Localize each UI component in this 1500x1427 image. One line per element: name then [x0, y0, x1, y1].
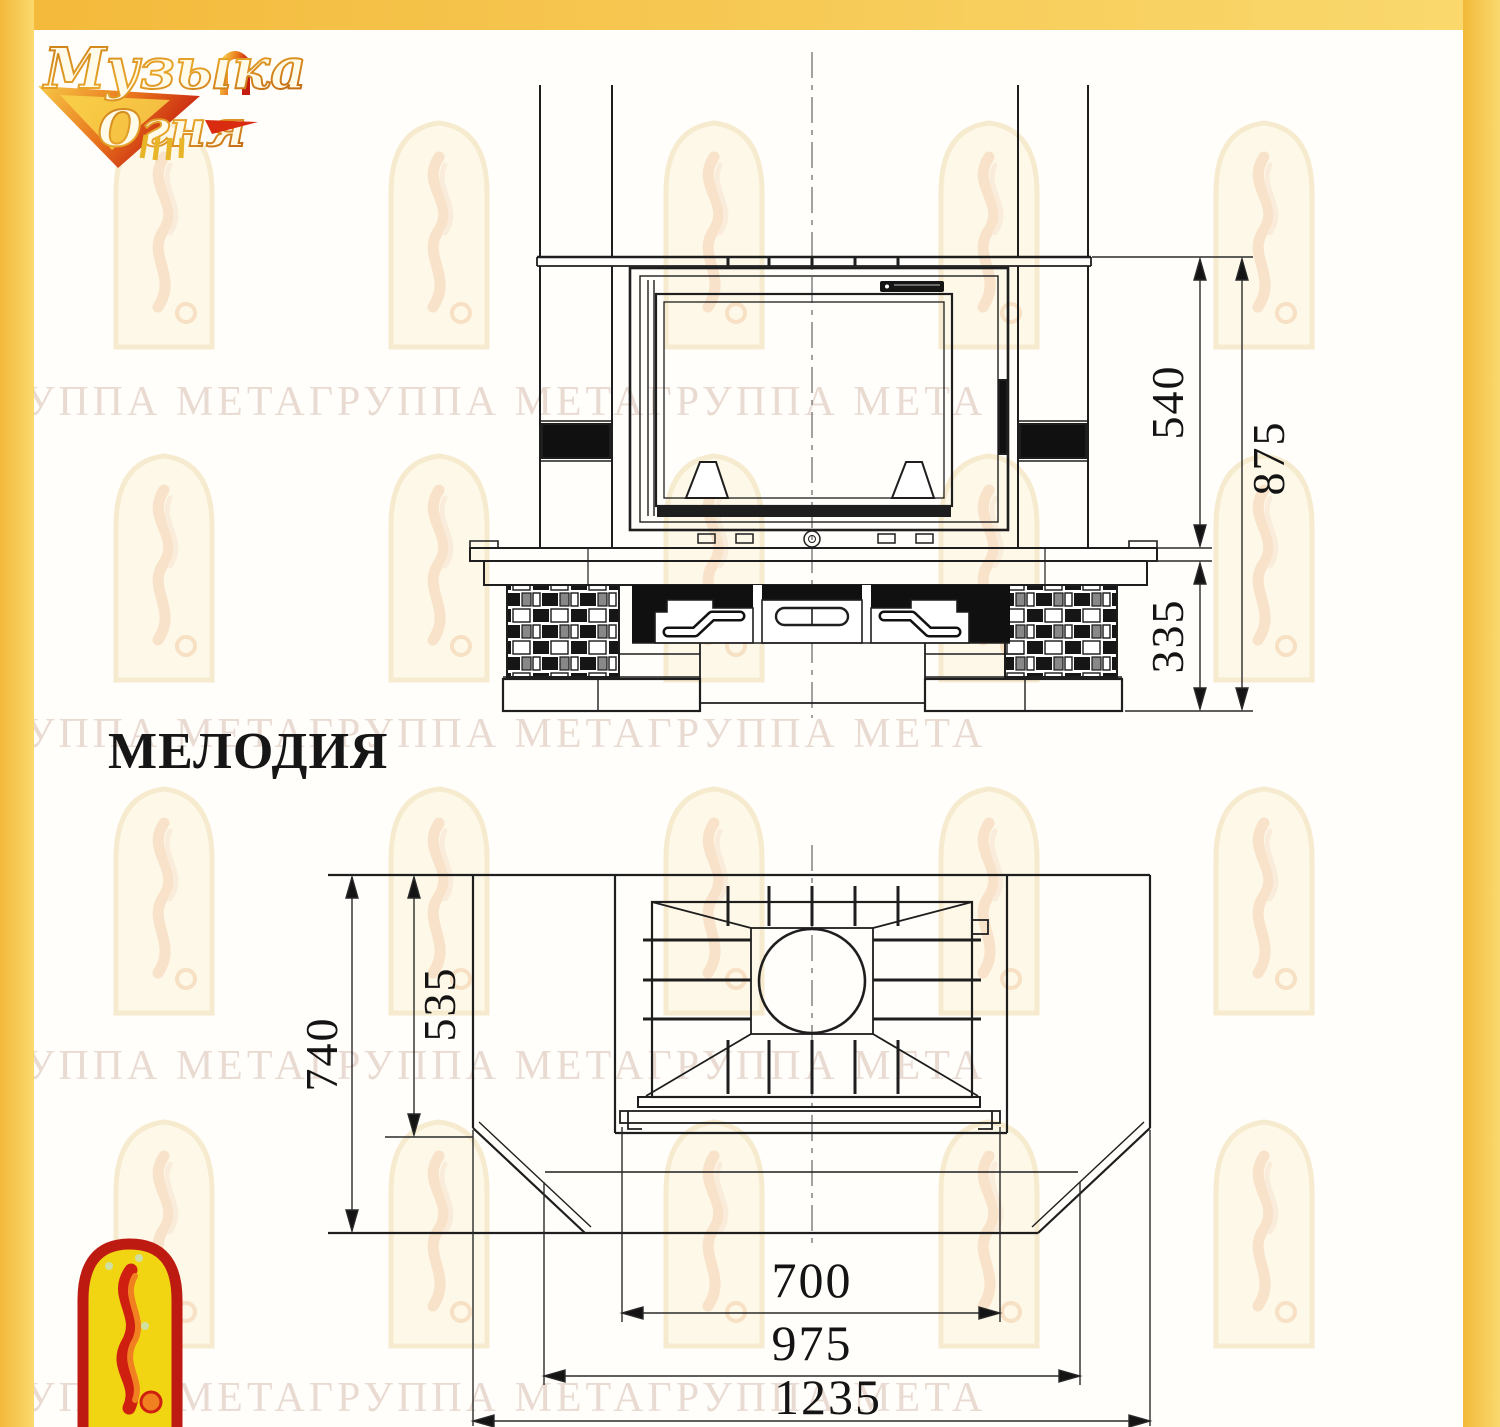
brick-pillar-right — [1005, 585, 1117, 677]
door-sill-bar — [658, 506, 950, 516]
watermark-row: ГРУППА МЕТАГРУППА МЕТАГРУППА МЕТА — [0, 1043, 986, 1089]
dim-label-875: 875 — [1243, 421, 1294, 496]
drawing-page: ГРУППА МЕТАГРУППА МЕТАГРУППА МЕТА ГРУППА… — [0, 0, 1500, 1427]
border-top — [0, 0, 1500, 30]
dim-label-1235: 1235 — [774, 1369, 882, 1425]
fireplace-technical-drawing: ГРУППА МЕТАГРУППА МЕТАГРУППА МЕТА ГРУППА… — [0, 0, 1500, 1427]
door-brand-mark — [880, 281, 944, 292]
arch-emblem — [83, 1244, 177, 1427]
page-title: МЕЛОДИЯ — [108, 723, 388, 780]
border-left — [0, 0, 34, 1427]
dim-label-700: 700 — [772, 1252, 853, 1308]
dim-label-975: 975 — [772, 1315, 853, 1371]
watermark-row: ГРУППА МЕТАГРУППА МЕТАГРУППА МЕТА — [0, 379, 986, 425]
border-right — [1463, 0, 1500, 1427]
decor-plate-center — [762, 600, 862, 643]
column-accent-band — [542, 424, 610, 458]
dim-label-540: 540 — [1142, 365, 1193, 440]
brick-pillar-left — [507, 585, 619, 677]
column-accent-band — [1020, 424, 1086, 458]
door-handle — [999, 380, 1007, 454]
dim-label-335: 335 — [1142, 599, 1193, 674]
dim-label-535: 535 — [414, 967, 465, 1042]
dim-label-740: 740 — [296, 1017, 347, 1092]
logo-word-1: Музыка — [42, 36, 306, 102]
